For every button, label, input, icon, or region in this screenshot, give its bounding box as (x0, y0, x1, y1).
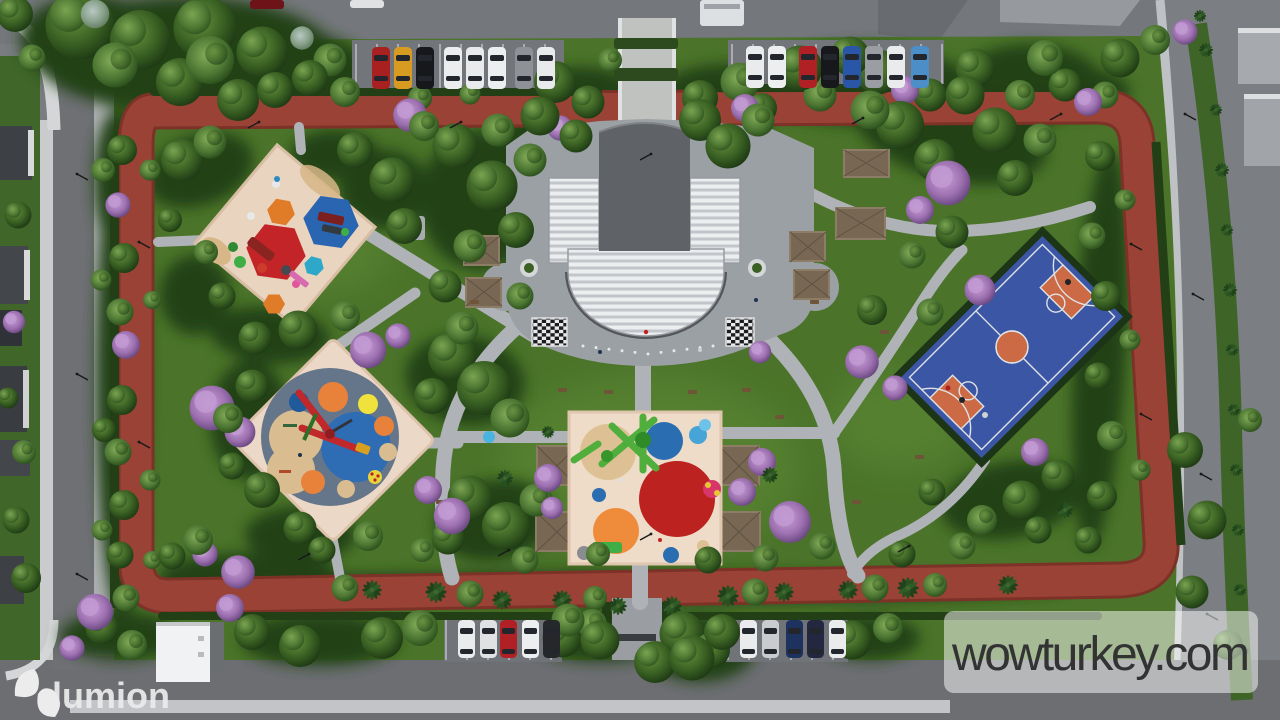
svg-text:lumion: lumion (52, 675, 170, 716)
svg-text:wowturkey.com: wowturkey.com (951, 628, 1250, 681)
